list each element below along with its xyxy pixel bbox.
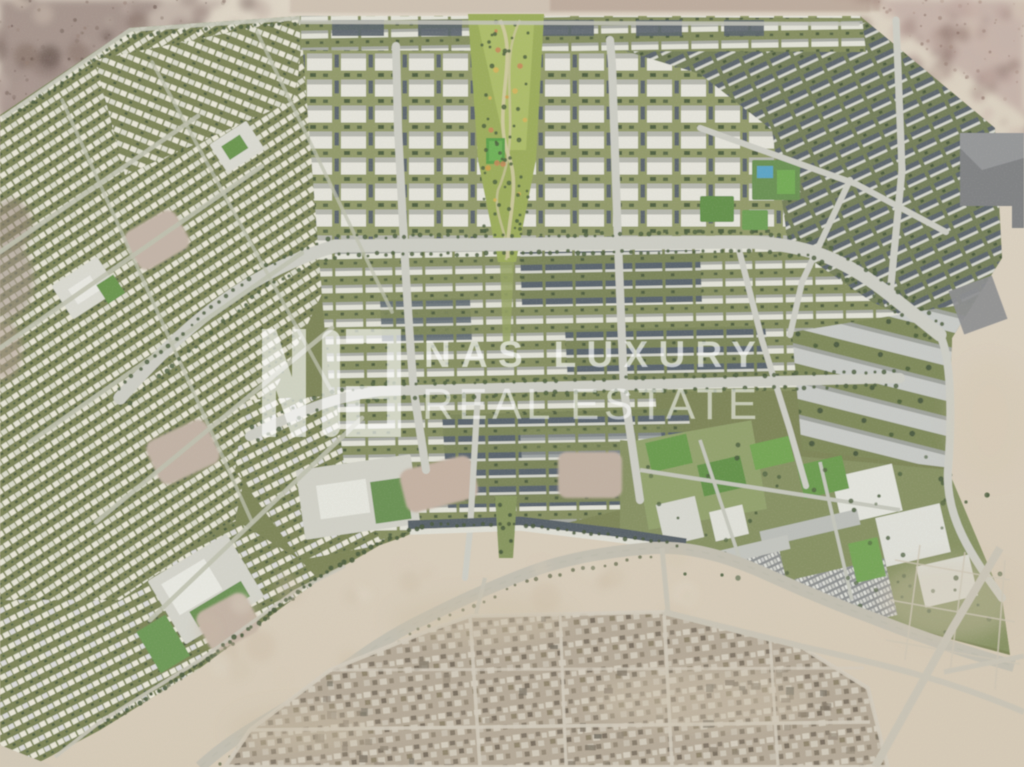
svg-text:NAS LUXURY: NAS LUXURY [424,334,766,375]
svg-text:REAL ESTATE: REAL ESTATE [422,380,762,429]
